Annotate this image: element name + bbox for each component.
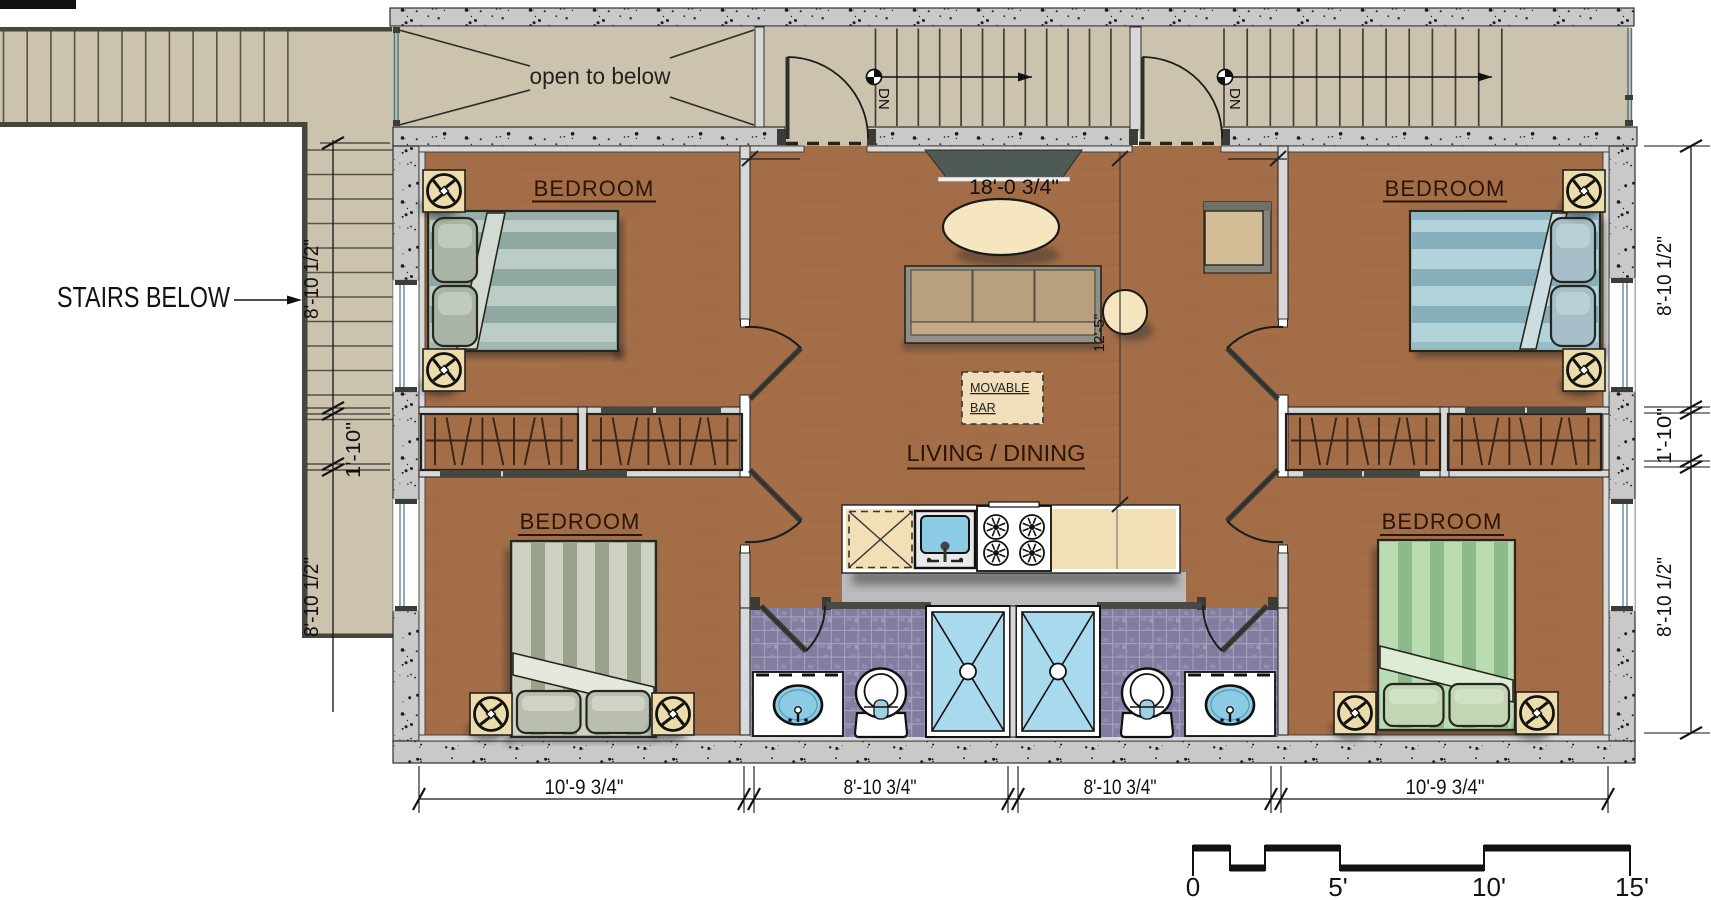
- svg-text:8'-10 1/2": 8'-10 1/2": [301, 239, 323, 319]
- svg-text:STAIRS BELOW: STAIRS BELOW: [57, 282, 231, 314]
- svg-text:open to below: open to below: [530, 63, 671, 89]
- svg-text:8'-10 1/2": 8'-10 1/2": [301, 557, 323, 637]
- svg-text:12'-5": 12'-5": [1091, 314, 1108, 352]
- svg-text:DN: DN: [1226, 88, 1243, 110]
- svg-text:10'-9 3/4": 10'-9 3/4": [545, 776, 624, 799]
- svg-text:15': 15': [1615, 872, 1649, 900]
- svg-text:8'-10 1/2": 8'-10 1/2": [1654, 236, 1676, 316]
- svg-text:LIVING / DINING: LIVING / DINING: [907, 440, 1086, 466]
- svg-text:5': 5': [1328, 872, 1347, 900]
- svg-text:18'-0 3/4": 18'-0 3/4": [969, 176, 1059, 199]
- svg-text:10'-9 3/4": 10'-9 3/4": [1406, 776, 1485, 799]
- svg-text:8'-10 1/2": 8'-10 1/2": [1654, 557, 1676, 637]
- svg-text:BEDROOM: BEDROOM: [1385, 176, 1506, 201]
- svg-text:BAR: BAR: [970, 401, 996, 415]
- svg-text:1'-10": 1'-10": [1654, 408, 1676, 464]
- svg-text:BEDROOM: BEDROOM: [1382, 509, 1503, 534]
- svg-text:MOVABLE: MOVABLE: [970, 381, 1030, 395]
- svg-text:8'-10 3/4": 8'-10 3/4": [1084, 776, 1157, 799]
- svg-text:BEDROOM: BEDROOM: [534, 176, 655, 201]
- svg-text:BEDROOM: BEDROOM: [520, 509, 641, 534]
- svg-text:10': 10': [1472, 872, 1506, 900]
- svg-text:0: 0: [1186, 872, 1200, 900]
- svg-text:8'-10 3/4": 8'-10 3/4": [844, 776, 917, 799]
- svg-text:DN: DN: [875, 88, 892, 110]
- svg-text:1'-10": 1'-10": [343, 422, 365, 478]
